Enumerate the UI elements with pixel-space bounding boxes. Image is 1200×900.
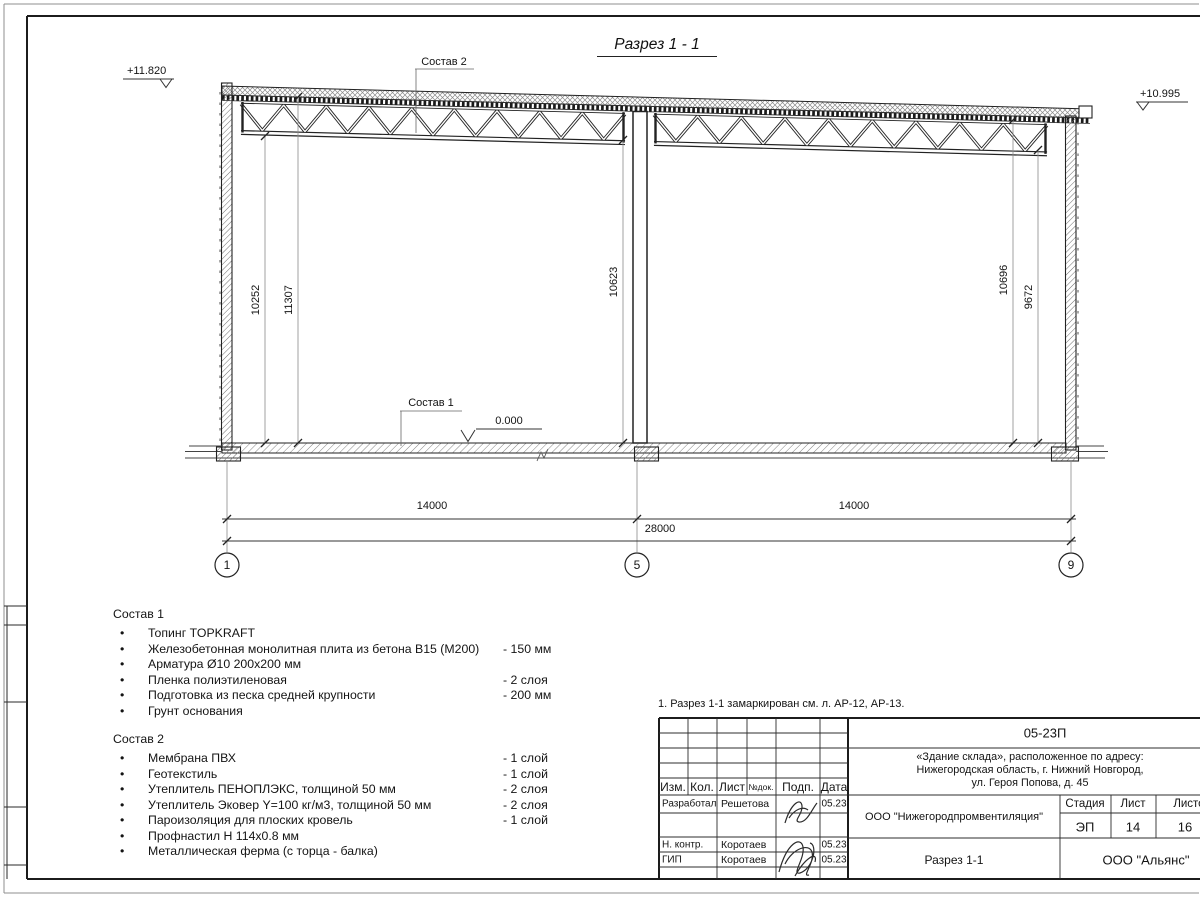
bullet-icon: • [120, 813, 124, 827]
callout-roof-label: Состав 2 [421, 56, 467, 68]
date-razrabotal: 05.23 [821, 799, 846, 810]
col-header-kol: Кол. [690, 780, 714, 794]
name-korotaev-2: Коротаев [721, 854, 766, 866]
role-razrabotal: Разработал [662, 799, 716, 810]
col-header-podp: Подп. [782, 780, 814, 794]
list-item: •Подготовка из песка средней крупности- … [113, 688, 588, 704]
item-value: - 1 слой [503, 767, 548, 781]
list-item: •Утеплитель Эковер Y=100 кг/м3, толщиной… [113, 798, 588, 814]
dim-span-left: 14000 [417, 500, 448, 512]
item-text: Утеплитель ПЕНОПЛЭКС, толщиной 50 мм [148, 782, 396, 796]
name-reshetova: Решетова [721, 798, 769, 810]
item-text: Утеплитель Эковер Y=100 кг/м3, толщиной … [148, 798, 431, 812]
item-value: - 150 мм [503, 642, 551, 656]
bullet-icon: • [120, 844, 124, 858]
item-value: - 1 слой [503, 813, 548, 827]
callout-floor-label: Состав 1 [408, 397, 454, 409]
stage-value: ЭП [1076, 819, 1095, 834]
list-item: •Арматура Ø10 200х200 мм [113, 657, 588, 673]
legend2-title: Состав 2 [113, 732, 588, 749]
role-nkontr: Н. контр. [662, 839, 703, 850]
bullet-icon: • [120, 688, 124, 702]
right-wall [1066, 116, 1077, 450]
item-text: Профнастил Н 114х0.8 мм [148, 829, 299, 843]
bullet-icon: • [120, 829, 124, 843]
date-gip: 05.23 [821, 854, 846, 865]
sheet-label: Лист [1121, 798, 1146, 810]
elevation-right-label: +10.995 [1140, 88, 1180, 100]
bullet-icon: • [120, 704, 124, 718]
section-linework [185, 83, 1108, 461]
legend1-title: Состав 1 [113, 607, 588, 624]
sheets-label: Листов [1173, 798, 1200, 810]
bullet-icon: • [120, 798, 124, 812]
legend-sostav2: Состав 2 •Мембрана ПВХ- 1 слой •Геотекст… [113, 732, 588, 860]
col-header-data: Дата [821, 780, 848, 794]
date-nkontr: 05.23 [821, 839, 846, 850]
sheets-total: 16 [1178, 819, 1192, 834]
sheet-number: 14 [1126, 819, 1140, 834]
project-code: 05-23П [1024, 726, 1067, 741]
item-text: Грунт основания [148, 704, 243, 718]
list-item: •Утеплитель ПЕНОПЛЭКС, толщиной 50 мм- 2… [113, 782, 588, 798]
item-text: Металлическая ферма (с торца - балка) [148, 844, 378, 858]
item-text: Подготовка из песка средней крупности [148, 688, 375, 702]
item-text: Топинг TOPKRAFT [148, 626, 255, 640]
item-text: Железобетонная монолитная плита из бетон… [148, 642, 479, 656]
dim-span-right: 14000 [839, 500, 870, 512]
item-value: - 2 слоя [503, 798, 548, 812]
item-value: - 200 мм [503, 688, 551, 702]
legend-sostav1: Состав 1 •Топинг TOPKRAFT •Железобетонна… [113, 607, 588, 719]
item-text: Пароизоляция для плоских кровель [148, 813, 353, 827]
margin-strip [4, 606, 27, 879]
bullet-icon: • [120, 657, 124, 671]
col-header-izm: Изм. [660, 780, 686, 794]
signature-razrabotal [785, 802, 817, 823]
object-address-line2: Нижегородская область, г. Нижний Новгоро… [916, 764, 1143, 776]
bullet-icon: • [120, 673, 124, 687]
callout-leaders [400, 69, 474, 446]
dim-ticks [261, 93, 1042, 447]
dim-10623: 10623 [608, 267, 620, 298]
left-wall [222, 83, 233, 450]
list-item: •Железобетонная монолитная плита из бето… [113, 642, 588, 658]
dim-9672: 9672 [1023, 285, 1035, 309]
elevation-zero-label: 0.000 [495, 415, 523, 427]
role-gip: ГИП [662, 854, 682, 865]
roof-edge-block [1079, 106, 1092, 118]
col-header-list: Лист [719, 780, 745, 794]
item-value: - 2 слоя [503, 673, 548, 687]
list-item: •Пароизоляция для плоских кровель- 1 сло… [113, 813, 588, 829]
drawing-sheet: Разрез 1 - 1 +11.820 +10.995 0.000 Соста… [0, 0, 1200, 900]
item-text: Пленка полиэтиленовая [148, 673, 287, 687]
signature-korotaev [779, 842, 815, 876]
dim-10252: 10252 [250, 285, 262, 316]
col-header-ndok: №док. [749, 782, 774, 792]
dim-total: 28000 [645, 523, 676, 535]
grid-axis-5: 5 [634, 558, 641, 572]
item-value: - 2 слоя [503, 782, 548, 796]
list-item: •Профнастил Н 114х0.8 мм [113, 829, 588, 845]
sheet-note: 1. Разрез 1-1 замаркирован см. л. АР-12,… [658, 698, 904, 710]
elevation-left-label: +11.820 [127, 65, 166, 77]
foundation-mid [635, 447, 659, 461]
bullet-icon: • [120, 782, 124, 796]
bullet-icon: • [120, 751, 124, 765]
grid-axis-1: 1 [224, 558, 231, 572]
item-text: Мембрана ПВХ [148, 751, 236, 765]
list-item: •Геотекстиль- 1 слой [113, 767, 588, 783]
design-org: ООО "Нижегородпромвентиляция" [865, 811, 1043, 823]
list-item: •Пленка полиэтиленовая- 2 слоя [113, 673, 588, 689]
grid-bubbles [215, 553, 1083, 577]
item-text: Арматура Ø10 200х200 мм [148, 657, 301, 671]
list-item: •Топинг TOPKRAFT [113, 626, 588, 642]
stage-label: Стадия [1065, 798, 1104, 810]
grid-axis-9: 9 [1068, 558, 1075, 572]
item-value: - 1 слой [503, 751, 548, 765]
list-item: •Грунт основания [113, 704, 588, 720]
middle-column [633, 112, 647, 444]
foundation-left [217, 447, 241, 461]
bullet-icon: • [120, 642, 124, 656]
bullet-icon: • [120, 626, 124, 640]
company-name: ООО "Альянс" [1103, 852, 1190, 867]
list-item: •Металлическая ферма (с торца - балка) [113, 844, 588, 860]
view-title: Разрез 1 - 1 [597, 36, 717, 57]
foundation-right [1052, 447, 1079, 461]
dim-10696: 10696 [998, 265, 1010, 296]
drawing-name: Разрез 1-1 [925, 853, 984, 867]
object-address-line3: ул. Героя Попова, д. 45 [972, 777, 1089, 789]
name-korotaev-1: Коротаев [721, 839, 766, 851]
item-text: Геотекстиль [148, 767, 217, 781]
bullet-icon: • [120, 767, 124, 781]
list-item: •Мембрана ПВХ- 1 слой [113, 751, 588, 767]
bottom-ext-lines [227, 461, 1071, 552]
dim-11307: 11307 [283, 285, 295, 315]
object-address-line1: «Здание склада», расположенное по адресу… [916, 751, 1143, 763]
